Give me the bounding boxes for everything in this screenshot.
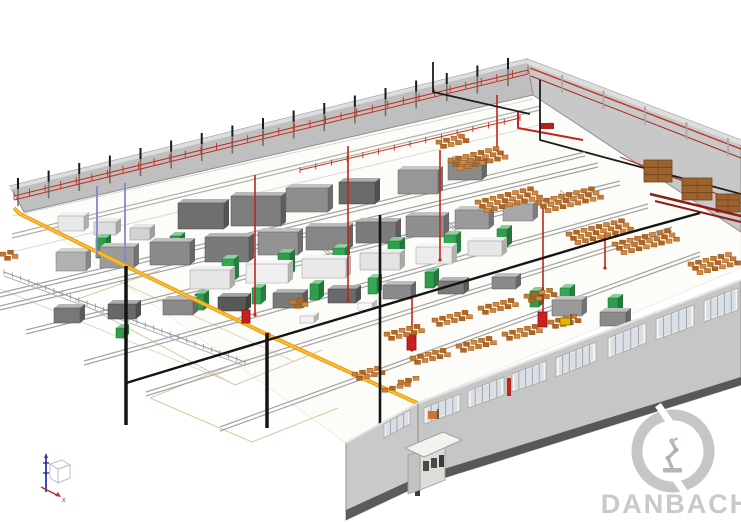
pallet-grid-stack — [650, 233, 656, 237]
chilled-water-pipe-outlet — [123, 258, 126, 261]
machine-side — [281, 192, 286, 226]
robot-arm-head — [669, 438, 675, 444]
machine-side — [134, 243, 139, 268]
pallet-grid-stack — [613, 231, 619, 235]
pallet-grid-stack — [502, 155, 508, 159]
pallet-grid-stack — [448, 158, 454, 162]
machine — [231, 196, 281, 226]
pallet-grid-stack — [662, 235, 668, 239]
pallet-grid-stack — [478, 306, 484, 310]
pallet-grid-stack — [711, 256, 717, 260]
pallet-grid-stack — [483, 310, 489, 314]
pallet-grid-stack — [508, 298, 514, 302]
pallet-grid-stack — [589, 226, 595, 230]
machine-side — [190, 238, 195, 265]
pallet-grid-stack — [465, 165, 471, 169]
pallet-grid-stack — [483, 198, 489, 202]
pallet-grid-stack — [490, 308, 496, 312]
machine-top — [286, 184, 333, 188]
entrance-hut-side — [408, 452, 420, 494]
machine — [178, 203, 224, 229]
pallet-grid-stack — [461, 348, 467, 352]
pallet-grid-stack — [720, 265, 726, 269]
pallet-grid-stack — [352, 372, 358, 376]
machine — [300, 316, 314, 323]
pallet-grid-stack — [441, 144, 447, 148]
machine-top — [150, 238, 195, 242]
pallet-grid-stack — [657, 231, 663, 235]
pallet-grid-stack — [463, 154, 469, 158]
pallet-grid-stack — [590, 237, 596, 241]
machine — [455, 210, 489, 229]
pallet-grid-stack — [665, 229, 671, 233]
machine-top — [328, 285, 361, 289]
machine — [108, 304, 136, 319]
pallet-grid-stack — [480, 161, 486, 165]
pallet-grid-stack — [357, 376, 363, 380]
pallet-grid-stack — [604, 223, 610, 227]
pallet-grid-stack — [636, 247, 642, 251]
pallet-grid-stack — [498, 194, 504, 198]
pallet-grid-stack — [620, 240, 626, 244]
machine-top — [231, 192, 286, 196]
machine-top — [258, 228, 303, 232]
pallet-grid-stack — [553, 324, 559, 328]
pallet-grid-stack — [730, 257, 736, 261]
pallet-grid-stack — [430, 356, 436, 360]
machine-top — [302, 255, 351, 259]
fire-hose-cabinet — [242, 310, 250, 323]
pallet-grid-stack — [460, 160, 466, 164]
pallet-grid-stack — [514, 201, 520, 205]
pallet-grid-stack — [669, 233, 675, 237]
pallet-grid-stack — [611, 221, 617, 225]
robot-arm-joint — [674, 448, 679, 453]
pallet-grid-stack — [298, 298, 304, 302]
pallet-grid-stack — [659, 241, 665, 245]
pallet-grid-stack — [406, 378, 412, 382]
pallet-grid-stack — [571, 197, 577, 201]
pallet-grid-stack — [735, 261, 741, 265]
pallet-grid-stack — [495, 157, 501, 161]
pallet-grid-stack — [547, 288, 553, 292]
machine — [406, 216, 444, 237]
pallet-grid-stack — [514, 334, 520, 338]
machine-side — [288, 260, 293, 283]
pallet-grid-stack — [520, 189, 526, 193]
machine-top — [178, 199, 229, 203]
pallet-grid-stack — [654, 237, 660, 241]
pallet-grid-stack — [436, 140, 442, 144]
standpipe — [507, 378, 511, 396]
pallet-grid-stack — [456, 156, 462, 160]
pallet-grid-stack — [414, 324, 420, 328]
pallet-grid-stack — [608, 227, 614, 231]
pallet-grid-stack — [463, 139, 469, 143]
pallet-grid-stack — [566, 232, 572, 236]
pallet-grid-stack — [468, 346, 474, 350]
pallet-grid-stack — [445, 353, 451, 357]
pallet-grid-stack — [583, 199, 589, 203]
entrance-hut-window — [423, 461, 429, 471]
pallet-grid-stack — [486, 149, 492, 153]
pallet-grid-stack — [541, 204, 547, 208]
pallet-grid-stack — [586, 232, 592, 236]
pallet-grid-stack — [413, 376, 419, 380]
pallet-grid-stack — [498, 306, 504, 310]
forklift-in-window — [428, 411, 438, 419]
pallet-grid-stack — [666, 239, 672, 243]
machine-top — [406, 212, 449, 216]
pallet-grid-stack — [559, 194, 565, 198]
pallet-grid-stack — [517, 195, 523, 199]
pallet-grid-stack — [491, 341, 497, 345]
pallet-grid-stack — [452, 318, 458, 322]
pallet-grid-stack — [529, 331, 535, 335]
factory-3d-render: x DANBACH — [0, 0, 741, 525]
pallet-grid-stack — [455, 312, 461, 316]
pallet-grid-stack — [462, 310, 468, 314]
pallet-grid-stack — [623, 223, 629, 227]
pallet-grid-stack — [8, 250, 14, 254]
pallet-grid-stack — [471, 152, 477, 156]
pallet-grid-stack — [507, 203, 513, 207]
chilled-water-pipe-outlet — [95, 254, 98, 257]
pallet-grid-stack — [621, 250, 627, 254]
pallet-grid-stack — [487, 202, 493, 206]
pallet-grid-stack — [440, 316, 446, 320]
pallet-grid-stack — [384, 332, 390, 336]
machine — [163, 300, 193, 315]
pallet-grid-stack — [444, 320, 450, 324]
pallet-grid-stack — [568, 203, 574, 207]
machine-side — [298, 228, 303, 255]
machine — [425, 272, 434, 288]
pallet-grid-stack — [537, 195, 543, 199]
pallet-grid-stack — [513, 191, 519, 195]
machine-top — [205, 233, 254, 237]
machine-top — [383, 281, 416, 285]
pallet-grid-stack — [457, 166, 463, 170]
pallet-grid-stack — [425, 352, 431, 356]
pallet-grid-stack — [632, 242, 638, 246]
machine — [150, 242, 190, 265]
pallet-grid-stack — [302, 302, 308, 306]
pallet-grid-stack — [697, 270, 703, 274]
pallet-grid-stack — [453, 162, 459, 166]
pallet-grid-stack — [444, 138, 450, 142]
pallet-grid-stack — [407, 326, 413, 330]
machine — [368, 278, 377, 294]
pallet-grid-stack — [712, 267, 718, 271]
pallet-grid-stack — [624, 244, 630, 248]
pallet-grid-stack — [495, 200, 501, 204]
pallet-grid-stack — [718, 254, 724, 258]
pallet-grid-stack — [490, 196, 496, 200]
pallet-grid-stack — [432, 318, 438, 322]
pallet-grid-stack — [440, 348, 446, 352]
fire-sign — [540, 123, 554, 129]
pallet-grid-stack — [290, 300, 296, 304]
pallet-grid-stack — [525, 326, 531, 330]
pallet-grid-stack — [715, 261, 721, 265]
machine — [339, 182, 375, 204]
machine-top — [190, 266, 235, 270]
machine-top — [54, 304, 85, 308]
pallet-grid-stack — [727, 263, 733, 267]
machine-top — [218, 293, 251, 297]
machine — [600, 312, 626, 326]
pallet-grid-stack — [642, 234, 648, 238]
pallet-grid-stack — [589, 187, 595, 191]
pallet-grid-stack — [502, 332, 508, 336]
pallet-grid-stack — [553, 207, 559, 211]
machine — [116, 328, 124, 338]
pallet-grid-stack — [574, 191, 580, 195]
pallet-grid-stack — [703, 258, 709, 262]
pallet-grid-stack — [581, 228, 587, 232]
machine — [246, 264, 288, 283]
pallet-grid-stack — [472, 163, 478, 167]
pallet-grid-stack — [688, 262, 694, 266]
pallet-grid-stack — [448, 142, 454, 146]
pallet-grid-stack — [596, 224, 602, 228]
pallet-grid-stack — [590, 197, 596, 201]
pallet-grid-stack — [545, 208, 551, 212]
pallet-grid-stack — [510, 197, 516, 201]
machine-top — [360, 249, 405, 253]
entrance-hut-door — [439, 455, 444, 467]
pallet-grid-stack — [499, 205, 505, 209]
pallet-grid-stack — [397, 384, 403, 388]
pallet-grid-stack — [389, 336, 395, 340]
pallet-grid-stack — [486, 336, 492, 340]
machine-side — [375, 178, 380, 204]
pallet-grid-stack — [548, 320, 554, 324]
pallet-grid-stack — [418, 354, 424, 358]
sprinkler-riser-outlet — [603, 266, 606, 269]
pallet-grid-stack — [459, 134, 465, 138]
pallet-grid-stack — [575, 319, 581, 323]
pallet-grid-stack — [571, 236, 577, 240]
pallet-grid-stack — [483, 343, 489, 347]
pallet-grid-stack — [522, 199, 528, 203]
pallet-grid-stack — [475, 157, 481, 161]
pallet-grid-stack — [390, 386, 396, 390]
pallet-grid-stack — [544, 294, 550, 298]
pallet-grid-stack — [693, 266, 699, 270]
pallet-grid-stack — [578, 195, 584, 199]
pallet-grid-stack — [478, 150, 484, 154]
machine-top — [273, 289, 308, 293]
pallet-grid-stack — [532, 191, 538, 195]
pallet-grid-stack — [532, 324, 538, 328]
machine — [130, 228, 150, 240]
sprinkler-riser-outlet — [253, 313, 256, 316]
fire-hose-cabinet — [538, 312, 547, 327]
machine-top — [246, 260, 293, 264]
pallet-grid-stack — [456, 344, 462, 348]
machine — [56, 252, 86, 271]
pallet-grid-stack — [551, 293, 557, 297]
pallet-grid-stack — [493, 147, 499, 151]
pallet-grid-stack — [419, 329, 425, 333]
forklift-body — [560, 318, 571, 325]
pallet-grid-stack — [537, 329, 543, 333]
machine-top — [100, 243, 139, 247]
pallet-grid-stack — [583, 239, 589, 243]
pallet-grid-stack — [475, 200, 481, 204]
pallet-grid-stack — [639, 241, 645, 245]
pallet-grid-stack — [705, 269, 711, 273]
pallet-grid-stack — [295, 304, 301, 308]
machine-side — [86, 248, 91, 271]
pallet-grid-stack — [422, 358, 428, 362]
pallet-grid-stack — [360, 370, 366, 374]
pallet-grid-stack — [544, 198, 550, 202]
pallet-grid-stack — [451, 136, 457, 140]
machine — [286, 188, 328, 212]
pallet-grid-stack — [616, 225, 622, 229]
pallet-grid-stack — [480, 204, 486, 208]
pallet-grid-stack — [563, 199, 569, 203]
pallet-grid-stack — [581, 189, 587, 193]
machine — [468, 241, 502, 256]
pallet-grid-stack — [492, 207, 498, 211]
pallet-grid-stack — [479, 338, 485, 342]
pallet-grid-stack — [612, 242, 618, 246]
pallet-grid-stack — [12, 254, 18, 258]
pallet-grid-stack — [529, 197, 535, 201]
pallet-grid-stack — [484, 208, 490, 212]
pallet-grid-stack — [700, 264, 706, 268]
pallet-grid-stack — [708, 262, 714, 266]
pallet-grid-stack — [536, 296, 542, 300]
pallet-grid-stack — [399, 328, 405, 332]
pallet-grid-stack — [696, 260, 702, 264]
machine — [218, 297, 246, 311]
pallet-grid-stack — [498, 151, 504, 155]
pallet-grid-stack — [517, 328, 523, 332]
pallet-grid-stack — [507, 336, 513, 340]
machine — [492, 277, 516, 289]
machine-top — [56, 248, 91, 252]
pallet-grid-stack — [529, 298, 535, 302]
machine — [328, 289, 356, 303]
pallet-grid-stack — [505, 192, 511, 196]
pallet-grid-stack — [404, 332, 410, 336]
pallet-grid-stack — [574, 230, 580, 234]
pallet-grid-stack — [392, 330, 398, 334]
machine-side — [249, 233, 254, 262]
pallet-grid-stack — [456, 140, 462, 144]
pallet-grid-stack — [674, 237, 680, 241]
machine-top — [58, 212, 89, 216]
machine-top — [468, 237, 507, 241]
pallet-grid-stack — [415, 360, 421, 364]
pallet-grid-stack — [493, 302, 499, 306]
robot-arm-joint — [666, 456, 671, 461]
sprinkler-riser-outlet — [346, 298, 349, 301]
pallet-grid-stack — [647, 239, 653, 243]
pallet-grid-stack — [410, 356, 416, 360]
pallet-grid-stack — [411, 331, 417, 335]
machine — [302, 259, 346, 278]
machine-top — [339, 178, 380, 182]
pallet-grid-stack — [539, 290, 545, 294]
pallet-grid-stack — [522, 332, 528, 336]
machine — [416, 247, 452, 264]
machine-top — [398, 166, 443, 170]
robot-arm-tip — [675, 438, 678, 441]
ucs-x-label: x — [61, 497, 66, 504]
pallet-grid-stack — [471, 340, 477, 344]
pallet-grid-stack — [459, 317, 465, 321]
danbach-wordmark: DANBACH — [601, 489, 741, 519]
machine — [190, 270, 230, 289]
pallet-grid-stack — [483, 155, 489, 159]
pallet-grid-stack — [548, 202, 554, 206]
pallet-grid-stack — [598, 235, 604, 239]
pallet-grid-stack — [617, 246, 623, 250]
pallet-grid-stack — [578, 234, 584, 238]
machine — [252, 288, 261, 304]
pallet-grid-stack — [726, 253, 732, 257]
pallet-grid-stack — [586, 193, 592, 197]
pallet-grid-stack — [405, 382, 411, 386]
machine — [54, 308, 80, 323]
entrance-hut-window — [431, 458, 437, 468]
pallet-grid-stack — [502, 199, 508, 203]
pallet-grid-stack — [593, 231, 599, 235]
pallet-grid-stack — [364, 374, 370, 378]
machine — [398, 170, 438, 194]
pallet-grid-stack — [487, 159, 493, 163]
pallet-grid-stack — [605, 233, 611, 237]
pallet-grid-stack — [513, 303, 519, 307]
machine-side — [224, 199, 229, 229]
pallet-grid-stack — [490, 153, 496, 157]
factory-3d-view: x DANBACH — [0, 0, 741, 525]
machine-side — [328, 184, 333, 212]
pallet-grid-stack — [382, 388, 388, 392]
pallet-grid-stack — [447, 314, 453, 318]
pallet-grid-stack — [372, 372, 378, 376]
pallet-grid-stack — [396, 334, 402, 338]
pallet-grid-stack — [5, 256, 11, 260]
pallet-grid-stack — [601, 229, 607, 233]
pallet-grid-stack — [629, 249, 635, 253]
pallet-grid-stack — [575, 201, 581, 205]
machine-top — [552, 296, 587, 300]
pallet-grid-stack — [723, 259, 729, 263]
pallet-grid-stack — [532, 292, 538, 296]
pallet-grid-stack — [398, 380, 404, 384]
machine-side — [230, 266, 235, 289]
pallet-grid-stack — [464, 342, 470, 346]
machine — [552, 300, 582, 316]
pallet-grid-stack — [598, 195, 604, 199]
machine-top — [492, 273, 521, 277]
pallet-grid-stack — [433, 350, 439, 354]
pallet-grid-stack — [510, 330, 516, 334]
pallet-grid-stack — [528, 187, 534, 191]
pallet-grid-stack — [0, 252, 6, 256]
pallet-grid-stack — [651, 243, 657, 247]
machine-top — [416, 243, 457, 247]
machine-top — [356, 218, 401, 222]
pallet-grid-stack — [524, 294, 530, 298]
